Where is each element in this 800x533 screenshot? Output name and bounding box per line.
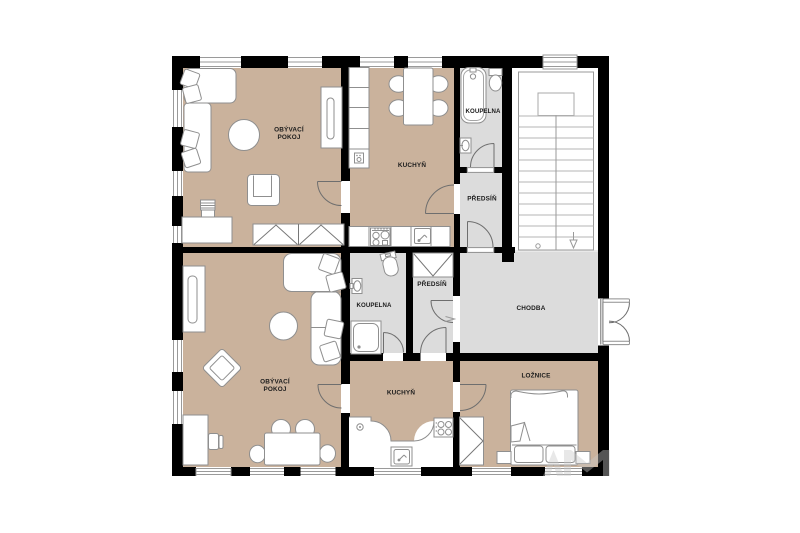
svg-text:KUCHYŇ: KUCHYŇ xyxy=(398,160,426,169)
svg-text:KOUPELNA: KOUPELNA xyxy=(466,108,501,115)
svg-text:OBÝVACÍ: OBÝVACÍ xyxy=(274,125,304,134)
svg-text:POKOJ: POKOJ xyxy=(277,134,300,141)
svg-text:OBÝVACÍ: OBÝVACÍ xyxy=(260,377,290,386)
svg-text:PŘEDSÍŇ: PŘEDSÍŇ xyxy=(417,279,447,288)
svg-text:POKOJ: POKOJ xyxy=(263,386,286,393)
svg-text:KOUPELNA: KOUPELNA xyxy=(357,302,392,309)
svg-text:PŘEDSÍŇ: PŘEDSÍŇ xyxy=(467,194,497,203)
svg-text:LOŽNICE: LOŽNICE xyxy=(521,371,551,380)
svg-text:KUCHYŇ: KUCHYŇ xyxy=(387,388,415,397)
svg-text:CHODBA: CHODBA xyxy=(517,305,546,312)
